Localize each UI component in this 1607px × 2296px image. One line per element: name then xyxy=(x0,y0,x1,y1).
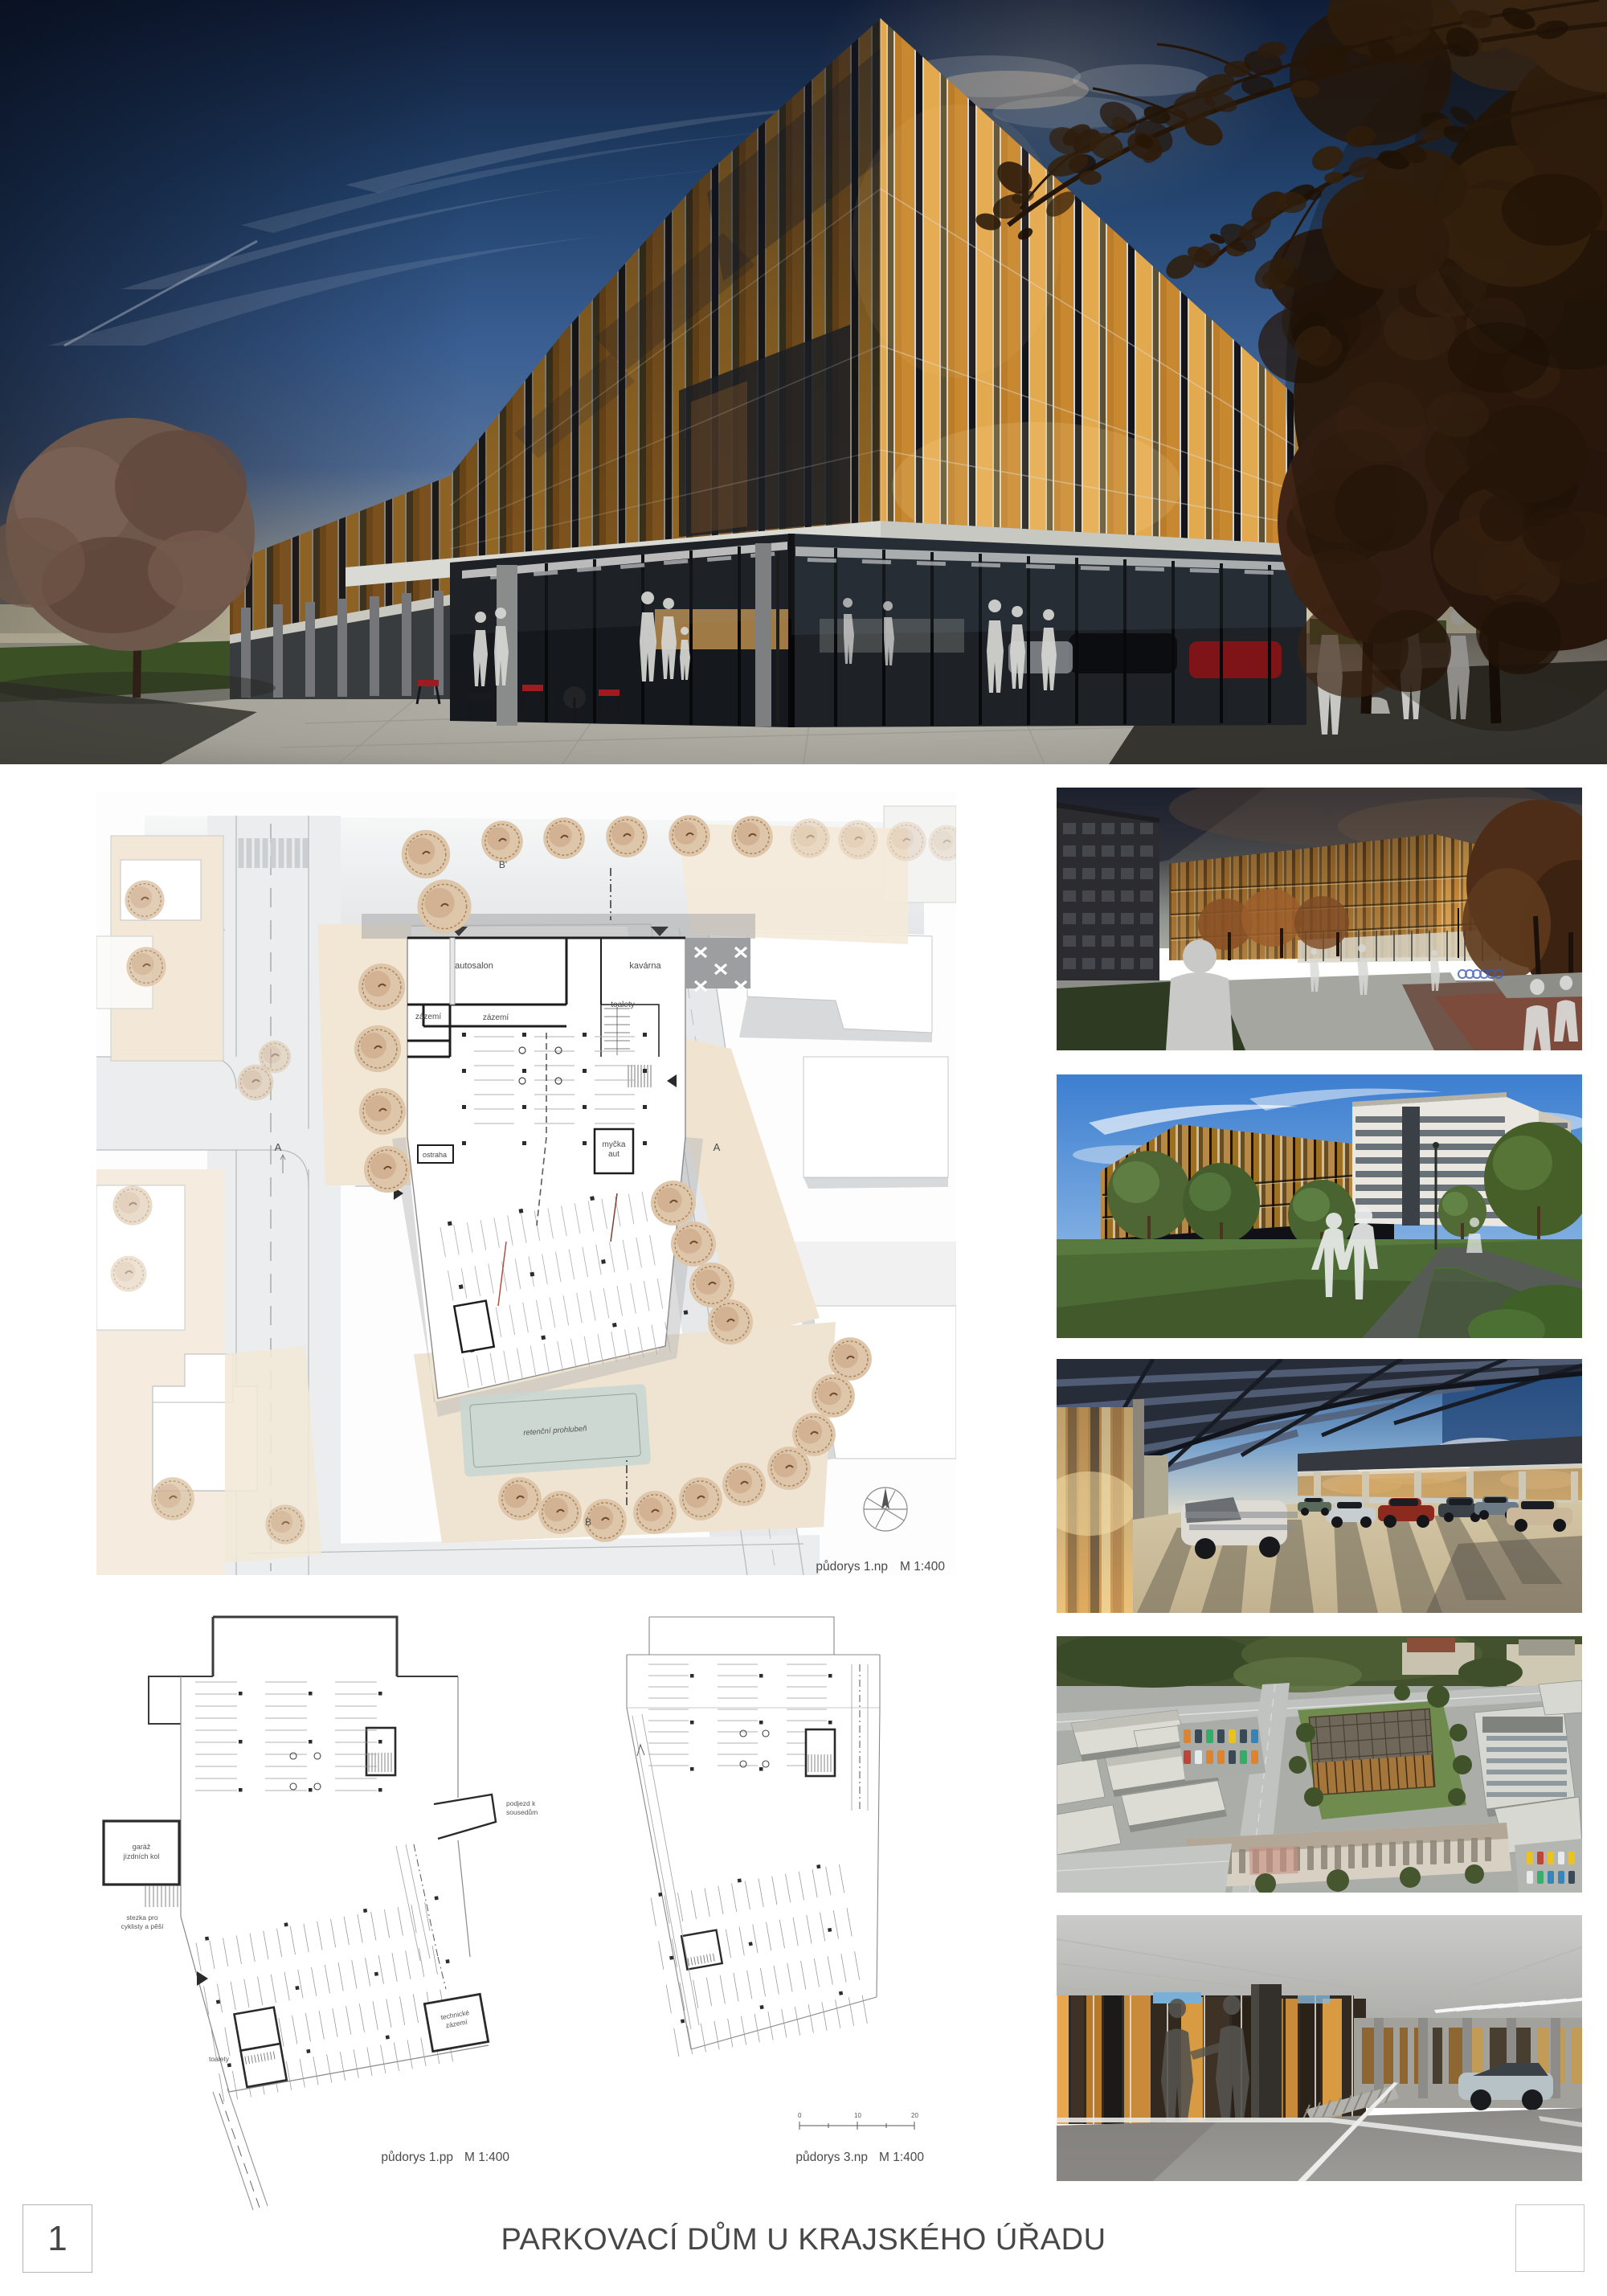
svg-text:kavárna: kavárna xyxy=(629,961,661,971)
svg-text:toalety: toalety xyxy=(611,1001,634,1009)
svg-text:ostraha: ostraha xyxy=(423,1151,447,1159)
svg-text:půdorys 1.np: půdorys 1.np xyxy=(816,1560,888,1574)
svg-text:půdorys 1.pp: půdorys 1.pp xyxy=(381,2151,453,2164)
svg-text:zázemí: zázemí xyxy=(415,1013,441,1021)
svg-text:M 1:400: M 1:400 xyxy=(879,2151,924,2164)
svg-text:toalety: toalety xyxy=(209,2055,230,2063)
svg-text:A: A xyxy=(714,1141,721,1153)
svg-text:stezka pro: stezka pro xyxy=(126,1913,157,1922)
svg-text:garáž: garáž xyxy=(133,1843,151,1851)
svg-text:podjezd k: podjezd k xyxy=(506,1799,536,1807)
svg-text:zázemí: zázemí xyxy=(483,1013,509,1022)
svg-text:0: 0 xyxy=(798,2112,802,2119)
svg-text:A: A xyxy=(275,1141,282,1153)
svg-text:autosalon: autosalon xyxy=(455,961,493,971)
svg-text:aut: aut xyxy=(608,1150,619,1159)
svg-text:myčka: myčka xyxy=(603,1140,626,1149)
svg-text:M 1:400: M 1:400 xyxy=(464,2151,509,2164)
svg-text:10: 10 xyxy=(854,2112,861,2119)
svg-text:20: 20 xyxy=(911,2112,918,2119)
svg-text:M 1:400: M 1:400 xyxy=(900,1560,945,1574)
svg-text:sousedům: sousedům xyxy=(506,1808,538,1816)
svg-text:B': B' xyxy=(499,859,507,870)
svg-text:půdorys 3.np: půdorys 3.np xyxy=(795,2151,868,2164)
svg-text:jízdních kol: jízdních kol xyxy=(122,1852,159,1860)
svg-text:B: B xyxy=(585,1516,591,1528)
svg-text:cyklisty a pěší: cyklisty a pěší xyxy=(121,1922,165,1930)
